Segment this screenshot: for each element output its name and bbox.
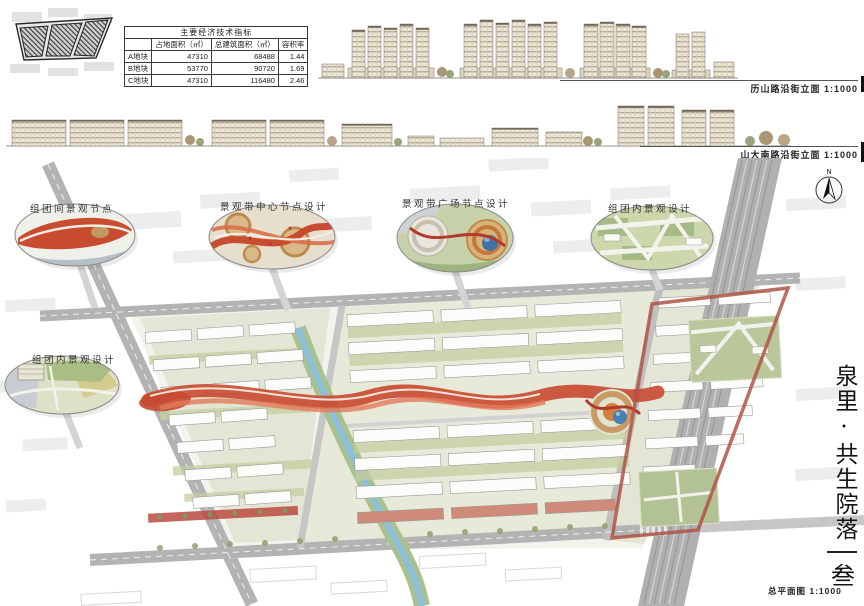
callout-label-2: 景观带中心节点设计 [220,199,328,213]
key-plan-diagram [8,6,120,78]
presentation-board: 主要经济技术指标 占地面积（㎡） 总建筑面积（㎡） 容积率 A地块 47310 … [0,0,864,606]
master-plan-drawing: N [0,158,864,606]
c-block-south-court [639,468,720,527]
lishan-road-elevation [318,6,738,82]
elevation2-rule [640,146,858,147]
col-header-gfa: 总建筑面积（㎡） [211,39,278,51]
callout-label-1: 组团间景观节点 [30,201,114,215]
c-block-courtyard [688,316,781,383]
shanda-road-elevation [6,92,806,150]
callout-label-4: 组团内景观设计 [608,201,692,215]
table-row: A地块 47310 68488 1.44 [125,51,308,63]
project-title: 泉里·共生院落 [828,364,860,542]
table-row: C地块 47310 116480 2.46 [125,75,308,87]
sheet-number: 叁 [831,556,855,591]
table-title: 主要经济技术指标 [125,27,308,39]
economic-indicators-table: 主要经济技术指标 占地面积（㎡） 总建筑面积（㎡） 容积率 A地块 47310 … [124,26,308,87]
col-header-land-area: 占地面积（㎡） [152,39,212,51]
title-divider [827,551,857,553]
callout-label-5: 组团内景观设计 [32,352,116,366]
table-row: B地块 53770 90720 1.69 [125,63,308,75]
north-label: N [826,169,831,176]
callout-label-3: 景观带广场节点设计 [402,196,510,210]
elevation1-rule [560,80,858,81]
col-header-far: 容积率 [278,39,308,51]
